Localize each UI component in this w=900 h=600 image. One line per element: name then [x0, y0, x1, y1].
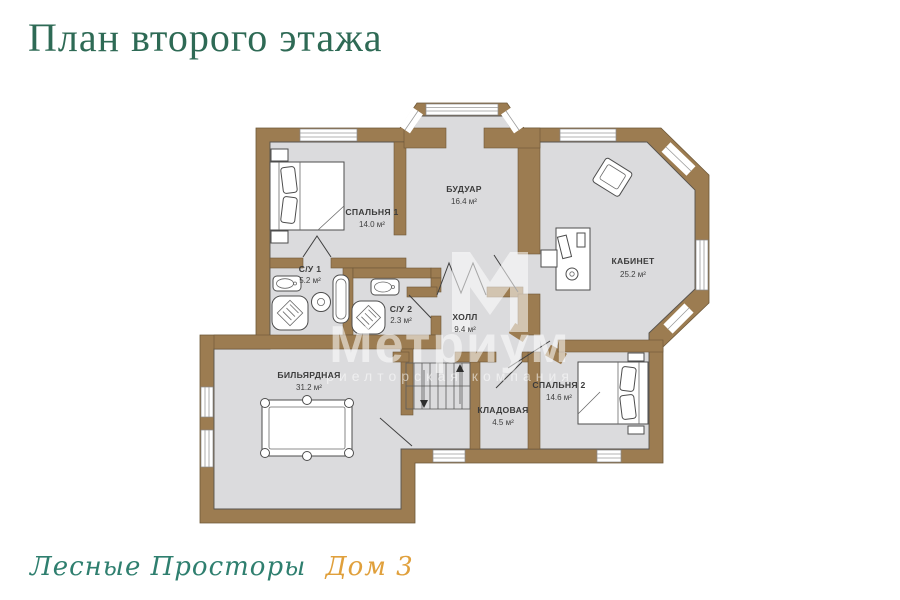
svg-text:КЛАДОВАЯ: КЛАДОВАЯ: [477, 405, 528, 415]
sink-icon: [273, 276, 301, 291]
svg-text:С/У 1: С/У 1: [299, 264, 322, 274]
svg-text:СПАЛЬНЯ 2: СПАЛЬНЯ 2: [532, 380, 585, 390]
window: [201, 387, 213, 417]
watermark-brand: Метриум: [329, 316, 570, 374]
window: [560, 129, 616, 141]
svg-text:БУДУАР: БУДУАР: [446, 184, 482, 194]
billiard-table-icon: [261, 396, 354, 461]
svg-text:9.4 м²: 9.4 м²: [454, 325, 476, 334]
sink-icon: [371, 279, 399, 295]
window: [300, 129, 357, 141]
svg-text:14.0 м²: 14.0 м²: [359, 220, 385, 229]
svg-text:5.2 м²: 5.2 м²: [299, 276, 321, 285]
bed-icon: [578, 353, 648, 434]
window: [597, 450, 621, 462]
project-signature: Лесные Просторы Дом 3: [30, 552, 414, 582]
shower-icon: [272, 296, 308, 330]
svg-text:31.2 м²: 31.2 м²: [296, 383, 322, 392]
floor-plan: Метриум риелторская компания СПАЛЬНЯ 1 1…: [0, 0, 900, 600]
bed-icon: [270, 149, 344, 243]
svg-text:25.2 м²: 25.2 м²: [620, 270, 646, 279]
svg-text:4.5 м²: 4.5 м²: [492, 418, 514, 427]
svg-text:2.3 м²: 2.3 м²: [390, 316, 412, 325]
house-number: Дом 3: [326, 552, 414, 582]
svg-text:С/У 2: С/У 2: [390, 304, 413, 314]
svg-text:БИЛЬЯРДНАЯ: БИЛЬЯРДНАЯ: [277, 370, 340, 380]
svg-text:14.6 м²: 14.6 м²: [546, 393, 572, 402]
toilet-icon: [312, 293, 331, 312]
svg-text:ХОЛЛ: ХОЛЛ: [452, 312, 477, 322]
svg-text:КАБИНЕТ: КАБИНЕТ: [611, 256, 655, 266]
svg-text:16.4 м²: 16.4 м²: [451, 197, 477, 206]
window: [433, 450, 465, 462]
svg-text:СПАЛЬНЯ 1: СПАЛЬНЯ 1: [345, 207, 398, 217]
window: [201, 430, 213, 467]
floor-plan-page: План второго этажа: [0, 0, 900, 600]
project-name: Лесные Просторы: [30, 552, 306, 582]
